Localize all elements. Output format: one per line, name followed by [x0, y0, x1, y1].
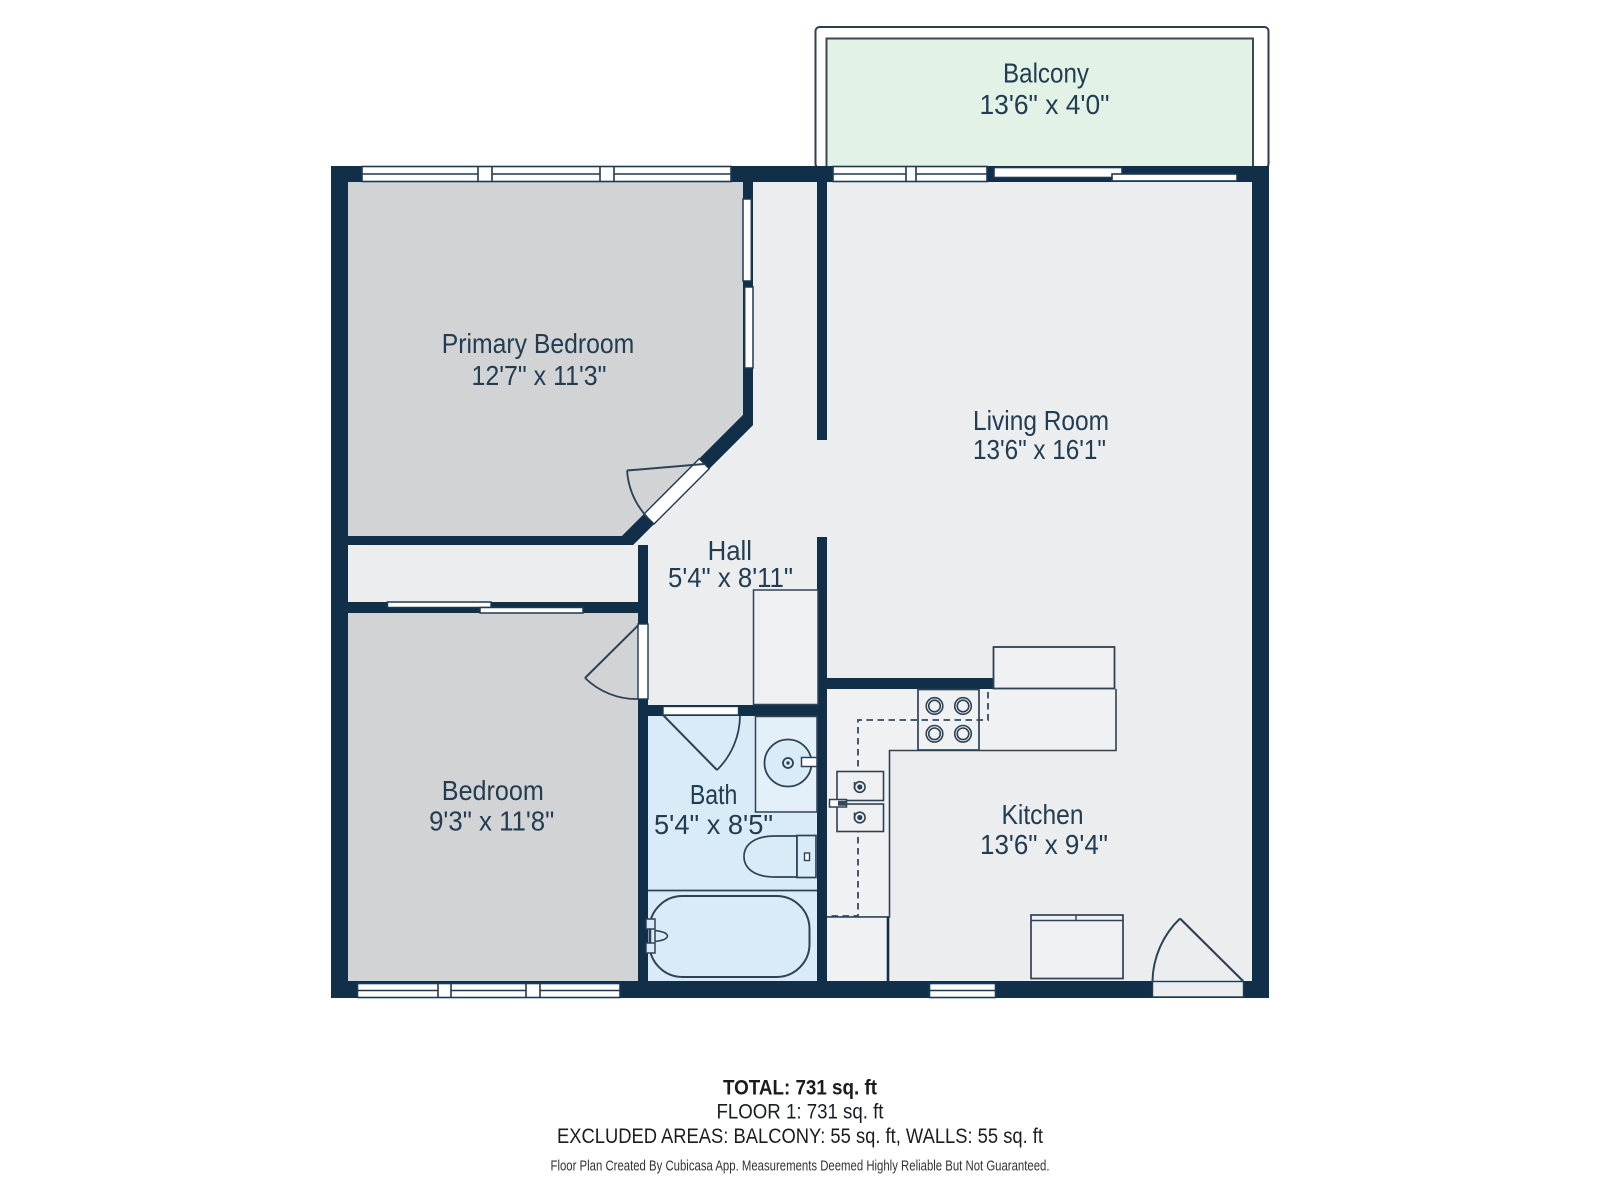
svg-text:13'6" x 16'1": 13'6" x 16'1"	[973, 434, 1106, 465]
svg-text:13'6" x 9'4": 13'6" x 9'4"	[980, 829, 1108, 860]
svg-text:5'4" x 8'5": 5'4" x 8'5"	[654, 809, 773, 840]
svg-text:Balcony: Balcony	[1003, 58, 1089, 89]
svg-text:13'6" x 4'0": 13'6" x 4'0"	[980, 89, 1110, 120]
svg-text:FLOOR 1: 731 sq. ft: FLOOR 1: 731 sq. ft	[717, 1101, 884, 1124]
svg-text:Primary Bedroom: Primary Bedroom	[442, 328, 635, 359]
svg-text:TOTAL: 731 sq. ft: TOTAL: 731 sq. ft	[723, 1077, 877, 1100]
svg-text:Living Room: Living Room	[973, 405, 1109, 436]
svg-text:Kitchen: Kitchen	[1002, 799, 1084, 830]
svg-text:Bedroom: Bedroom	[442, 775, 544, 806]
svg-text:Floor Plan Created By Cubicasa: Floor Plan Created By Cubicasa App. Meas…	[551, 1159, 1050, 1175]
svg-text:9'3" x 11'8": 9'3" x 11'8"	[429, 806, 554, 837]
svg-text:EXCLUDED AREAS: BALCONY: 55 sq: EXCLUDED AREAS: BALCONY: 55 sq. ft, WALL…	[557, 1125, 1043, 1148]
svg-text:Bath: Bath	[690, 779, 738, 810]
svg-text:5'4" x 8'11": 5'4" x 8'11"	[668, 562, 793, 593]
svg-text:12'7" x 11'3": 12'7" x 11'3"	[472, 360, 607, 391]
